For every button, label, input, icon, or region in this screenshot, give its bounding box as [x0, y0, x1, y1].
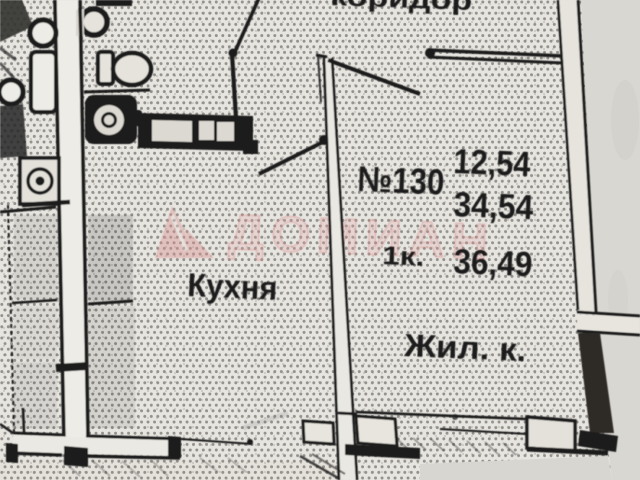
svg-text:Жил. к.: Жил. к. — [403, 327, 527, 368]
svg-text:Кухня: Кухня — [187, 266, 278, 307]
svg-text:12,54: 12,54 — [453, 142, 532, 184]
svg-text:34,54: 34,54 — [453, 185, 535, 227]
svg-text:1к.: 1к. — [382, 240, 425, 272]
svg-text:№130: №130 — [357, 158, 446, 203]
svg-text:36,49: 36,49 — [453, 242, 534, 284]
